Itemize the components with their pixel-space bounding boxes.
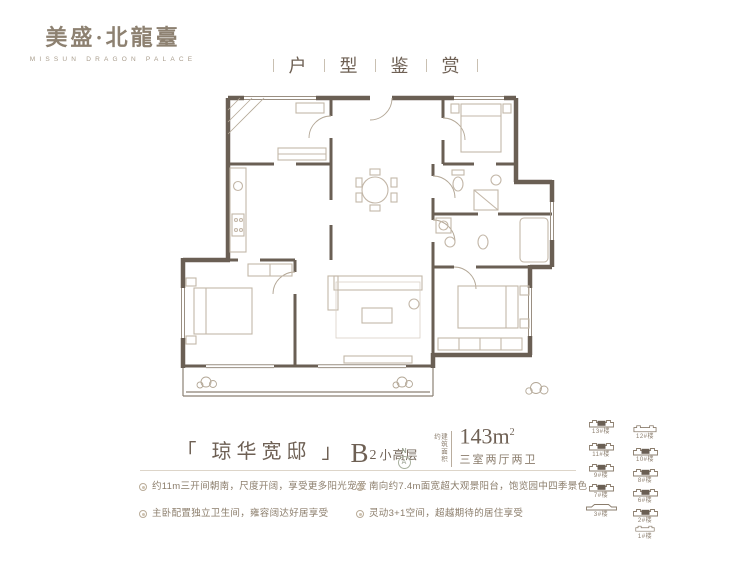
dining-table xyxy=(356,169,397,211)
building-item: 9#楼 xyxy=(582,463,620,480)
building-item: 12#楼 xyxy=(626,424,664,441)
hatch-corner xyxy=(228,98,264,134)
building-label: 7#楼 xyxy=(582,493,620,500)
building-item: 6#楼 xyxy=(626,488,664,505)
unit-model-letter: B xyxy=(350,442,368,464)
title-char: 赏 xyxy=(442,52,462,78)
title-divider-bar xyxy=(426,59,427,72)
interior-walls xyxy=(183,98,552,366)
east-bedroom-bed xyxy=(438,286,529,350)
area-value: 143m2 xyxy=(460,423,538,446)
bullet-icon xyxy=(356,510,364,518)
section-divider xyxy=(140,470,576,471)
title-char: 户 xyxy=(289,52,309,78)
plant-icon xyxy=(197,377,217,388)
unit-rooms: 三室两厅两卫 xyxy=(460,451,538,467)
title-divider-bar xyxy=(273,59,274,72)
building-label: 10#楼 xyxy=(626,457,664,464)
building-item: 1#楼 xyxy=(626,524,664,541)
building-item: 13#楼 xyxy=(582,419,620,436)
bullet-icon xyxy=(356,483,364,491)
feature-item: 灵动3+1空间，超越期待的居住享受 xyxy=(356,508,617,520)
building-item: 3#楼 xyxy=(582,503,620,519)
building-label: 12#楼 xyxy=(626,434,664,441)
master-bed xyxy=(186,264,292,344)
feature-text: 灵动3+1空间，超越期待的居住享受 xyxy=(369,508,523,520)
bath2-fixtures xyxy=(436,218,548,262)
feature-item: 主卧配置独立卫生间，雍容阔达好居享受 xyxy=(139,508,356,520)
feature-text: 主卧配置独立卫生间，雍容阔达好居享受 xyxy=(152,508,328,520)
feature-text: 约11m三开间朝南，尺度开阔，享受更多阳光宠爱 xyxy=(152,481,367,493)
building-label: 13#楼 xyxy=(582,429,620,436)
building-item: 10#楼 xyxy=(626,447,664,464)
site-plan: 13#楼 11#楼 9#楼 7#楼 3#楼 12#楼 10#楼 8# xyxy=(582,419,672,539)
building-item: 7#楼 xyxy=(582,483,620,500)
building-label: 8#楼 xyxy=(626,478,664,485)
compass-ring: A xyxy=(398,456,411,469)
title-divider-bar xyxy=(375,59,376,72)
brand-name-cn: 美盛·北龍臺 xyxy=(28,20,198,52)
compass-north-label: N xyxy=(393,448,415,455)
plant-icon xyxy=(526,383,548,395)
building-label: 1#楼 xyxy=(626,534,664,541)
windows xyxy=(182,97,554,368)
living-room-sofa xyxy=(328,276,422,363)
title-divider-bar xyxy=(477,59,478,72)
plant-icon xyxy=(393,377,413,388)
building-label: 3#楼 xyxy=(582,512,620,519)
area-group: 143m2 三室两厅两卫 xyxy=(460,423,538,467)
door-arcs xyxy=(273,98,476,294)
kitchen-counter xyxy=(230,168,246,252)
unit-model-number: 2 xyxy=(370,448,377,464)
page-title: 户 型 鉴 赏 xyxy=(0,52,750,78)
bullet-icon xyxy=(139,510,147,518)
compass-icon: N A xyxy=(393,448,415,469)
flex-room-furniture xyxy=(278,103,326,160)
building-label: 9#楼 xyxy=(582,473,620,480)
unit-name: 「 琼华宽邸 」 xyxy=(176,435,346,467)
building-label: 11#楼 xyxy=(582,452,620,459)
floor-plan xyxy=(178,90,562,412)
building-item: 11#楼 xyxy=(582,442,620,459)
feature-text: 南向约7.4m面宽超大观景阳台，饱览园中四季景色 xyxy=(369,481,587,493)
building-item: 2#楼 xyxy=(626,508,664,525)
area-label: 建筑面积约 xyxy=(433,433,447,467)
brochure-page: 美盛·北龍臺 MISSUN DRAGON PALACE 户 型 鉴 赏 xyxy=(0,0,750,562)
bath1-fixtures xyxy=(452,170,501,210)
title-divider-bar xyxy=(324,59,325,72)
feature-item: 约11m三开间朝南，尺度开阔，享受更多阳光宠爱 xyxy=(139,481,356,493)
building-item: 8#楼 xyxy=(626,468,664,485)
title-char: 鉴 xyxy=(391,52,411,78)
title-char: 型 xyxy=(340,52,360,78)
bullet-icon xyxy=(139,483,147,491)
feature-list: 约11m三开间朝南，尺度开阔，享受更多阳光宠爱 南向约7.4m面宽超大观景阳台，… xyxy=(139,481,617,520)
building-label: 6#楼 xyxy=(626,498,664,505)
north-bedroom-bed xyxy=(451,104,511,152)
vertical-divider xyxy=(451,431,452,467)
feature-item: 南向约7.4m面宽超大观景阳台，饱览园中四季景色 xyxy=(356,481,617,493)
